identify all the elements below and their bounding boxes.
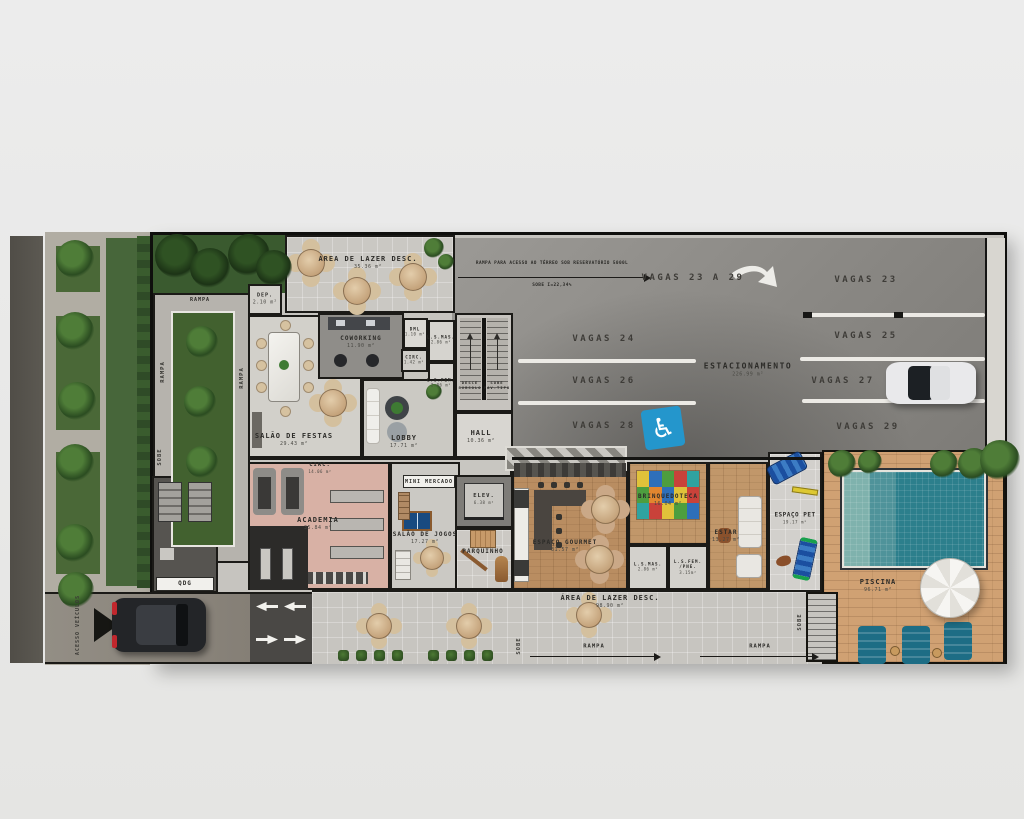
side-table <box>932 648 942 658</box>
stair-arrow-icon <box>497 336 498 370</box>
room-label: ÁREA DE LAZER DESC. 35.36 m² <box>318 255 417 271</box>
room-label: L.S.FEM. /PNE. 3.15m² <box>674 559 702 575</box>
palm-tree <box>56 240 94 278</box>
chair <box>256 338 267 349</box>
room-area: 31.57 m² <box>533 547 598 554</box>
appliance <box>514 490 529 508</box>
tree <box>980 440 1020 480</box>
room-area: 35.36 m² <box>318 264 417 271</box>
ramp-label: RAMPA <box>190 297 210 304</box>
room-label: PARQUINHO <box>462 548 504 556</box>
room-area: 17.71 m² <box>390 443 418 450</box>
sun-lounger <box>858 626 886 664</box>
office-chair <box>366 354 379 367</box>
room-name: BRINQUEDOTECA <box>638 493 698 501</box>
pergola <box>514 463 626 477</box>
room-area: 2.10 m² <box>253 299 278 306</box>
stool <box>538 482 544 488</box>
parking-surface <box>452 238 985 460</box>
stall-line <box>518 359 696 363</box>
mat-cell <box>649 471 661 487</box>
chair <box>280 406 291 417</box>
chair <box>256 382 267 393</box>
room-label: ÁREA DE LAZER DESC. 98.90 m² <box>560 594 659 610</box>
stool <box>556 514 562 520</box>
office-chair <box>334 354 347 367</box>
chair <box>256 360 267 371</box>
ramp-left-label: RAMPA <box>160 361 166 383</box>
room-label: L.S.MAS. 2.86 m² <box>427 335 455 346</box>
room-label: MINI MERCADO <box>405 479 453 486</box>
room-area: 1.10 m² <box>405 332 425 337</box>
rampa-arrow <box>530 656 658 657</box>
stall-label: VAGAS 29 <box>836 422 899 432</box>
room-name: SALÃO DE JOGOS <box>393 531 458 539</box>
chair <box>303 338 314 349</box>
room-area: 14.06 m² <box>308 469 331 474</box>
car-top-view-white <box>886 362 976 404</box>
stall-label: VAGAS 23 <box>834 275 897 285</box>
stair-label-down: DESCE SUBSOLO <box>458 381 481 391</box>
gym-mat <box>250 526 308 590</box>
tree <box>190 248 230 288</box>
wheelchair-accessible-icon: ♿ <box>640 405 685 450</box>
room-name: COWORKING <box>340 335 382 343</box>
lobby-plant <box>391 402 403 414</box>
room-area: 98.90 m² <box>560 603 659 610</box>
room-area: 29.43 m² <box>255 441 333 448</box>
room-name: ESPAÇO GOURMET <box>533 539 598 547</box>
mat-cell <box>637 471 649 487</box>
ramp-right-label: RAMPA <box>239 367 245 389</box>
stool <box>556 528 562 534</box>
bar-counter <box>534 490 586 506</box>
pool-tile-grid <box>844 472 984 566</box>
barbell <box>282 548 293 580</box>
slide <box>495 556 508 582</box>
elevator-door <box>464 517 504 520</box>
room-area: 35.84 m² <box>297 525 339 532</box>
room-label: ESPAÇO PET 19.17 m² <box>774 511 815 524</box>
chair <box>303 360 314 371</box>
room-name: ÁREA DE LAZER DESC. <box>318 255 417 264</box>
room-label: BRINQUEDOTECA 16.04 m² <box>638 493 698 507</box>
shrub <box>446 650 457 661</box>
room-area: 6.38 m² <box>473 500 495 505</box>
stool <box>577 482 583 488</box>
plant <box>184 386 216 418</box>
tree <box>256 250 292 286</box>
parking-name: ESTACIONAMENTO <box>704 362 792 372</box>
dumbbell-rack <box>306 572 368 584</box>
room-area: 10.36 m² <box>467 438 495 445</box>
mat-cell <box>674 471 686 487</box>
ramp-note-text: RAMPA PARA ACESSO AO TÉRREO SOB RESERVAT… <box>476 261 628 267</box>
parking-shading <box>452 238 985 460</box>
room-label: ACADEMIA 35.84 m² <box>297 516 339 532</box>
pool-table-line <box>417 513 418 529</box>
room-label: DML 1.10 m² <box>405 327 425 338</box>
round-table <box>366 613 392 639</box>
treadmill <box>281 468 304 515</box>
room-label: PISCINA 96.71 m² <box>860 578 897 594</box>
market-shelf <box>398 492 410 520</box>
room-area: 19.17 m² <box>774 519 815 524</box>
rampa-bottom-label: RAMPA <box>749 643 771 650</box>
parking-ramp-slope: SOBE I=22,34% <box>532 283 572 289</box>
room-name: ELEV. <box>473 493 495 500</box>
room-label: COWORKING 11.90 m² <box>340 335 382 349</box>
monitor <box>366 320 375 326</box>
plant <box>186 446 218 478</box>
stall-line <box>800 357 985 361</box>
shrub <box>464 650 475 661</box>
car-taillight <box>112 635 117 648</box>
room-label: QDG <box>178 580 192 588</box>
room-label: CIRC. 14.06 m² <box>308 462 331 474</box>
room-name: ACADEMIA <box>297 516 339 525</box>
ramp-slope-text: SOBE I=22,34% <box>532 283 572 289</box>
room-area: 2.86 m² <box>634 567 662 572</box>
rampa-label: RAMPA <box>749 643 771 650</box>
floor-plan-canvas: ACESSO VEÍCULOS ÁREA DE LAZER DESC. 35.3… <box>0 0 1024 819</box>
room-label: DEP. 2.10 m² <box>253 293 278 306</box>
room-area: 96.71 m² <box>860 587 897 594</box>
generator-unit <box>188 482 212 522</box>
room-espaco-gourmet <box>512 462 628 590</box>
room-name: CIRC. <box>308 462 331 469</box>
armchair <box>736 554 762 578</box>
room-label: HALL 10.36 m² <box>467 429 495 445</box>
plant <box>828 450 856 478</box>
sidewalk-grass-column <box>106 238 138 586</box>
room-area: 1.42 m² <box>404 360 424 365</box>
shrub <box>356 650 367 661</box>
sun-lounger <box>944 622 972 660</box>
stall-label: VAGAS 28 <box>572 421 635 431</box>
stool <box>551 482 557 488</box>
room-name: ESPAÇO PET <box>774 511 815 519</box>
sobe-ramp-label: SOBE <box>157 448 163 465</box>
stair-label-up: SOBE PAV.TIPO <box>484 381 510 391</box>
parking-title: ESTACIONAMENTO 226.99 m² <box>704 362 792 379</box>
plant <box>858 450 882 474</box>
room-name: ESTAR <box>712 529 740 537</box>
access-vehicles-label: ACESSO VEÍCULOS <box>75 595 81 655</box>
car-roof <box>136 605 180 645</box>
table-plant <box>279 360 289 370</box>
card-table <box>420 546 444 570</box>
room-name: ÁREA DE LAZER DESC. <box>560 594 659 603</box>
room-name: HALL <box>467 429 495 438</box>
plant <box>438 254 454 270</box>
room-label: L.S.MAS. 2.86 m² <box>634 562 662 573</box>
room-area: 2.86 m² <box>427 340 455 345</box>
stall-line-tick <box>803 312 812 318</box>
room-label: ESTAR 13.27 m² <box>712 529 740 543</box>
vagas-range-label: VAGAS 23 A 29 <box>642 273 745 283</box>
side-table <box>890 646 900 656</box>
stool <box>564 482 570 488</box>
room-name: LOBBY <box>390 434 418 443</box>
room-label: ELEV. 6.38 m² <box>473 493 495 505</box>
treadmill-belt <box>286 477 299 509</box>
mat-cell <box>662 471 674 487</box>
room-label: ESPAÇO GOURMET 31.57 m² <box>533 539 598 553</box>
plant <box>186 326 218 358</box>
sobe-pool-label: SOBE <box>797 613 803 630</box>
palm-tree <box>56 524 94 562</box>
room-label: SALÃO DE JOGOS 17.27 m² <box>393 531 458 545</box>
shrub <box>392 650 403 661</box>
room-name: SALÃO DE FESTAS <box>255 432 333 441</box>
wall-parking-south <box>512 457 822 460</box>
weight-bench <box>330 546 384 559</box>
shrub <box>374 650 385 661</box>
round-table <box>343 277 371 305</box>
room-name: PISCINA <box>860 578 897 587</box>
round-table <box>319 389 347 417</box>
round-table <box>456 613 482 639</box>
stair-arrow-icon <box>470 336 471 370</box>
room-area: 3.15m² <box>674 570 702 575</box>
room-name: MINI MERCADO <box>405 479 453 486</box>
stall-label: VAGAS 25 <box>834 331 897 341</box>
room-name: PARQUINHO <box>462 548 504 556</box>
stall-line-tick <box>894 312 903 318</box>
stair-up-2: PAV.TIPO <box>484 386 510 391</box>
car-roof <box>930 366 950 400</box>
stall-line <box>518 401 696 405</box>
room-area: 13.27 m² <box>712 537 740 544</box>
rampa-arrow <box>700 656 816 657</box>
street-asphalt <box>10 236 43 663</box>
chair <box>303 382 314 393</box>
sofa <box>738 496 762 548</box>
car-windshield <box>176 604 188 646</box>
stall-label: VAGAS 26 <box>572 376 635 386</box>
stair-down-2: SUBSOLO <box>458 386 481 391</box>
sobe-bottom-label: SOBE <box>516 637 522 654</box>
weight-bench <box>330 490 384 503</box>
treadmill <box>253 468 276 515</box>
room-area: 16.04 m² <box>638 501 698 508</box>
barbell <box>260 548 271 580</box>
ramp-direction-arrow <box>458 277 648 278</box>
parking-area: 226.99 m² <box>704 372 792 379</box>
mat-cell <box>687 471 699 487</box>
room-area: 2.86 m² <box>427 383 455 388</box>
room-area: 17.27 m² <box>393 539 458 546</box>
room-name: QDG <box>178 580 192 588</box>
stall-label: VAGAS 27 <box>811 376 874 386</box>
room-label: LOBBY 17.71 m² <box>390 434 418 450</box>
equipment-box <box>160 548 174 560</box>
room-label: SALÃO DE FESTAS 29.43 m² <box>255 432 333 448</box>
room-area: 11.90 m² <box>340 343 382 350</box>
stall-label: VAGAS 24 <box>572 334 635 344</box>
treadmill-belt <box>258 477 271 509</box>
palm-tree <box>56 444 94 482</box>
games-shelf <box>395 550 411 580</box>
sun-lounger <box>902 626 930 664</box>
shrub <box>482 650 493 661</box>
room-label: CIRC. 1.42 m² <box>404 355 424 366</box>
room-label: L.S.FEM. 2.86 m² <box>427 378 455 389</box>
ramp-top-label: RAMPA <box>190 297 210 304</box>
rampa-bottom-label: RAMPA <box>583 643 605 650</box>
dark-drive-lane <box>250 592 312 664</box>
plant <box>930 450 958 478</box>
generator-unit <box>158 482 182 522</box>
deck-stairs <box>806 592 838 662</box>
chair <box>280 320 291 331</box>
shrub <box>428 650 439 661</box>
round-table <box>591 495 620 524</box>
pool-umbrella <box>920 558 980 618</box>
curb-strip <box>985 238 1005 460</box>
monitor <box>336 320 345 326</box>
swimming-pool <box>842 470 986 568</box>
rampa-label: RAMPA <box>583 643 605 650</box>
parking-ramp-note: RAMPA PARA ACESSO AO TÉRREO SOB RESERVAT… <box>476 261 628 267</box>
car-taillight <box>112 602 117 615</box>
appliance <box>514 560 529 576</box>
palm-tree <box>58 382 96 420</box>
sofa <box>366 388 380 444</box>
car-top-view-black <box>112 598 206 652</box>
hedge-strip <box>137 236 150 588</box>
palm-tree <box>56 312 94 350</box>
shrub <box>338 650 349 661</box>
picnic-table <box>470 530 496 548</box>
